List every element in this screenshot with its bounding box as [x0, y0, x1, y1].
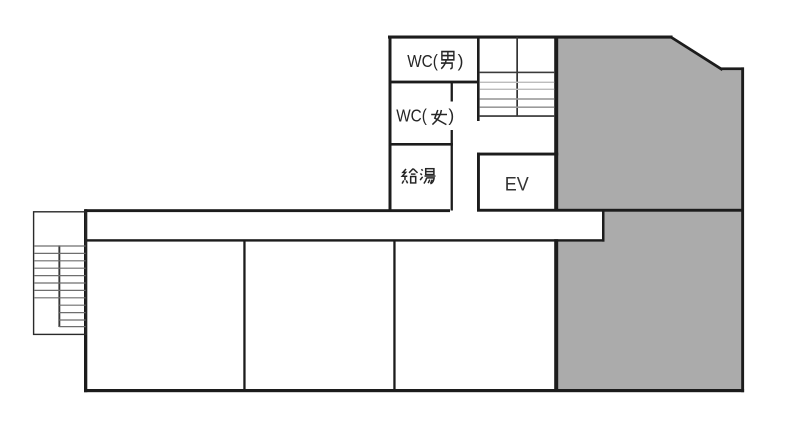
svg-text:): ) — [448, 105, 454, 125]
svg-text:WC(: WC( — [407, 51, 438, 71]
svg-text:WC(: WC( — [396, 105, 427, 125]
svg-text:EV: EV — [505, 175, 529, 196]
svg-text:): ) — [458, 51, 464, 71]
